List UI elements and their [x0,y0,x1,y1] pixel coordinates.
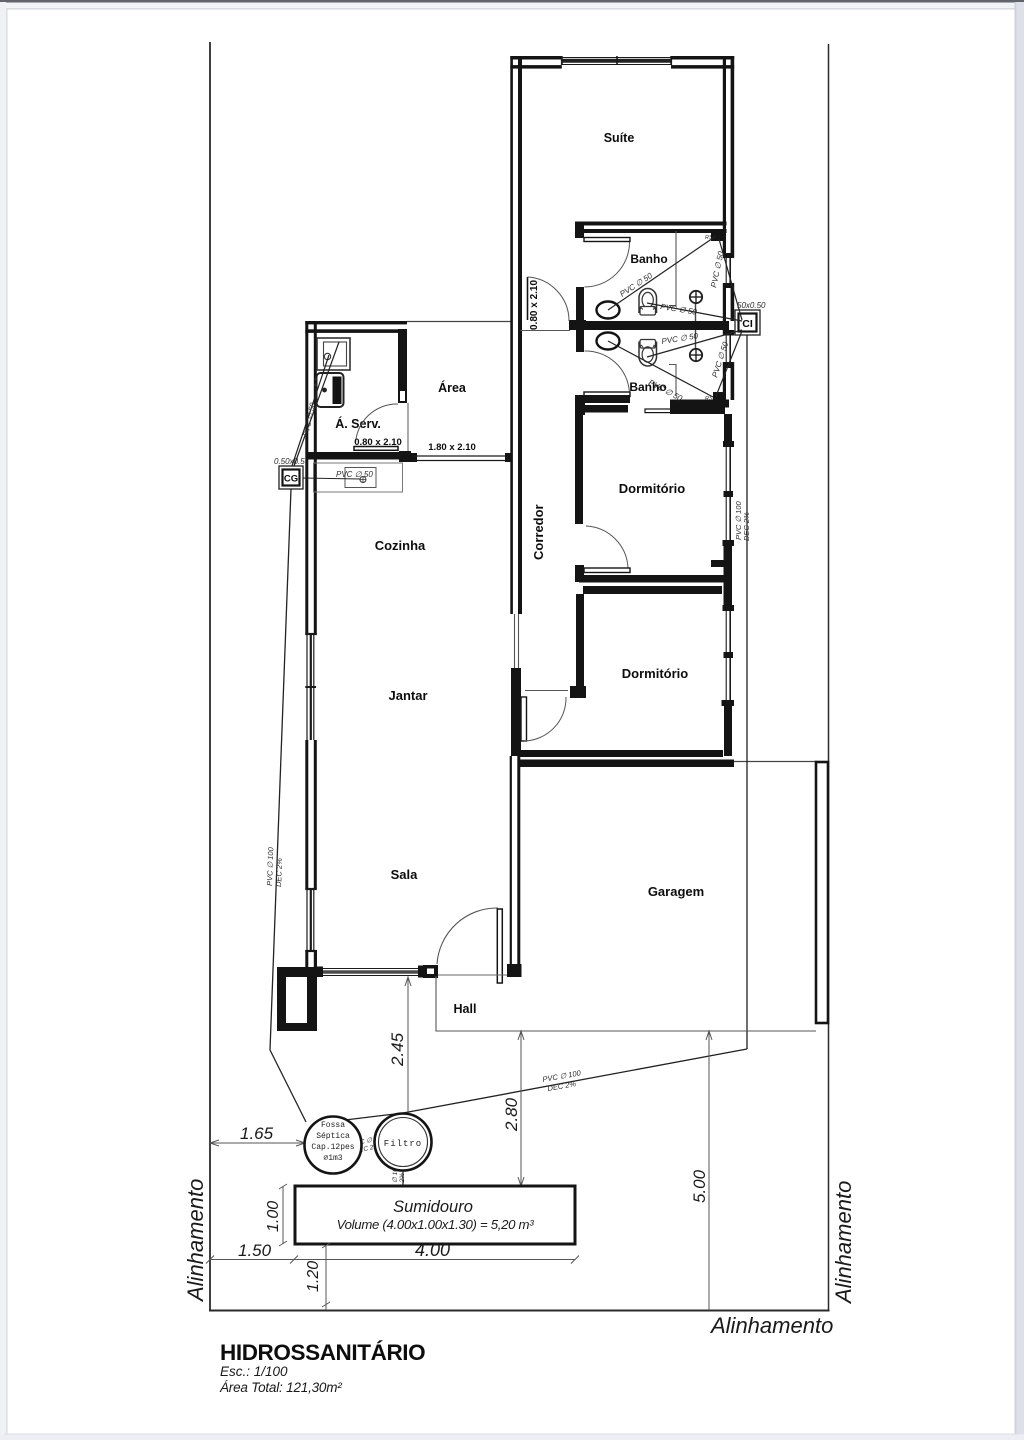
svg-text:PVC ∅ 50: PVC ∅ 50 [336,470,373,479]
svg-text:Esc.: 1/100: Esc.: 1/100 [220,1364,288,1379]
svg-text:Alinhamento: Alinhamento [831,1181,856,1305]
svg-text:2.80: 2.80 [502,1097,521,1132]
svg-text:Fossa: Fossa [321,1121,345,1130]
svg-text:4.00: 4.00 [415,1240,450,1260]
svg-text:5.00: 5.00 [690,1169,709,1203]
svg-text:Á. Serv.: Á. Serv. [335,416,381,431]
svg-text:Filtro: Filtro [384,1139,422,1149]
svg-text:Dormitório: Dormitório [622,666,689,681]
svg-text:1.80 x 2.10: 1.80 x 2.10 [428,442,476,453]
svg-text:Volume (4.00x1.00x1.30) = 5,20: Volume (4.00x1.00x1.30) = 5,20 m³ [337,1217,535,1232]
svg-text:Área: Área [438,380,467,395]
svg-text:HIDROSSANITÁRIO: HIDROSSANITÁRIO [220,1340,425,1365]
svg-text:Área Total: 121,30m²: Área Total: 121,30m² [219,1380,342,1395]
svg-text:CI: CI [742,318,753,330]
svg-text:CG: CG [284,474,298,485]
svg-text:0.80 x 2.10: 0.80 x 2.10 [529,280,540,330]
svg-text:Sala: Sala [391,867,419,882]
svg-text:DEC 2%: DEC 2% [274,858,284,887]
svg-text:Sumidouro: Sumidouro [393,1198,473,1216]
svg-text:∅1m3: ∅1m3 [323,1154,342,1163]
svg-text:Alinhamento: Alinhamento [183,1179,208,1303]
svg-text:2.45: 2.45 [388,1032,407,1067]
svg-text:50x0.50: 50x0.50 [737,301,766,310]
svg-text:Jantar: Jantar [388,688,427,703]
svg-text:1.50: 1.50 [238,1241,272,1260]
svg-text:1.00: 1.00 [265,1201,282,1232]
svg-text:DEC 2%: DEC 2% [742,512,751,541]
svg-text:Dormitório: Dormitório [619,481,686,496]
svg-text:Banho: Banho [630,252,667,266]
svg-text:Cap.12pes: Cap.12pes [311,1143,354,1152]
svg-text:Alinhamento: Alinhamento [709,1313,833,1338]
svg-text:Garagem: Garagem [648,884,704,899]
svg-text:Cozinha: Cozinha [375,538,426,553]
svg-text:1.20: 1.20 [305,1261,322,1292]
svg-text:Corredor: Corredor [531,504,546,560]
svg-text:Séptica: Séptica [316,1132,350,1141]
svg-text:0.50x0.5: 0.50x0.5 [274,457,305,466]
svg-text:1.65: 1.65 [240,1124,274,1143]
svg-text:Hall: Hall [454,1002,477,1016]
svg-text:Suíte: Suíte [604,131,635,145]
svg-text:0.80 x 2.10: 0.80 x 2.10 [354,437,402,448]
